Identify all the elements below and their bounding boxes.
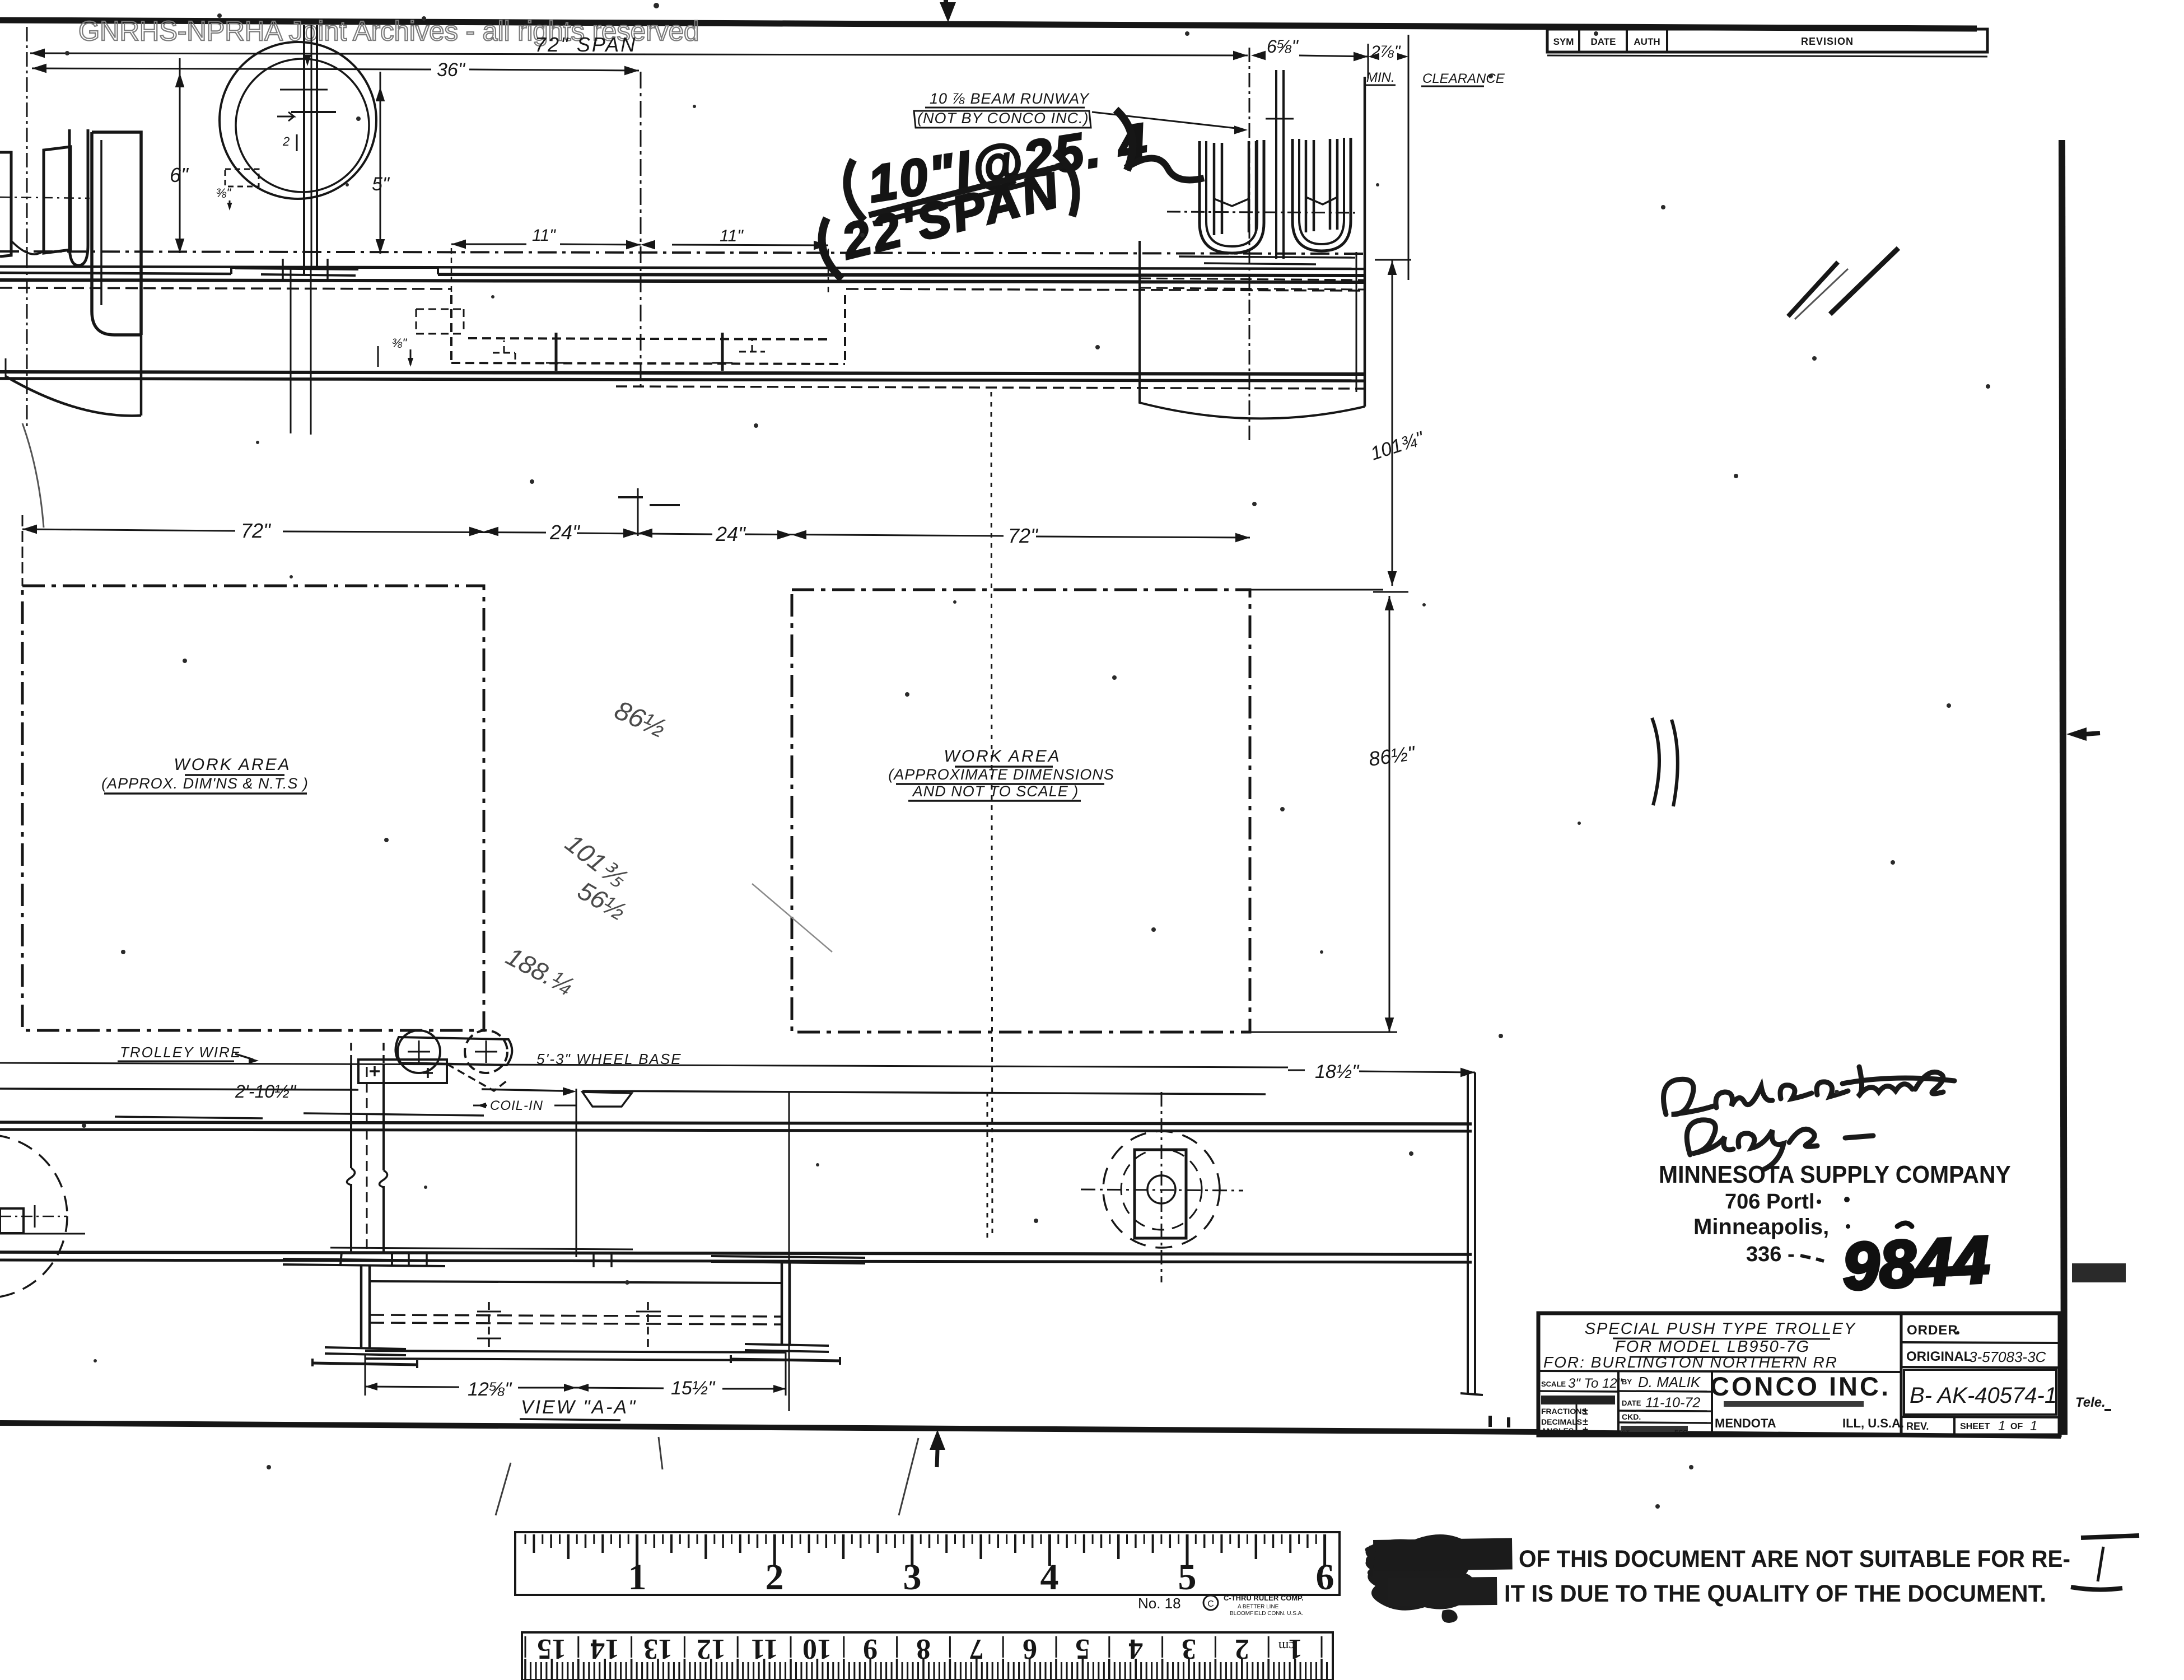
svg-text:OF: OF (2010, 1422, 2023, 1431)
svg-text:336 -: 336 - (1746, 1243, 1795, 1266)
svg-text:3: 3 (903, 1557, 922, 1598)
svg-text:6": 6" (170, 164, 189, 186)
svg-text:SHEET: SHEET (1960, 1422, 1990, 1431)
svg-text:72" SPAN: 72" SPAN (535, 33, 637, 56)
svg-text:8: 8 (916, 1633, 931, 1665)
svg-text:5": 5" (372, 174, 390, 195)
svg-text:DATE: DATE (1590, 36, 1616, 47)
svg-text:(APPROXIMATE DIMENSIONS: (APPROXIMATE DIMENSIONS (888, 766, 1114, 783)
svg-text:72": 72" (1008, 524, 1039, 547)
svg-text:CLEARANCE: CLEARANCE (1422, 71, 1505, 86)
svg-text:COIL-IN: COIL-IN (490, 1098, 543, 1113)
svg-text:188.¼: 188.¼ (501, 941, 578, 1001)
svg-text:11": 11" (532, 226, 556, 245)
svg-text:36": 36" (437, 59, 466, 81)
svg-text:6⅝": 6⅝" (1267, 36, 1299, 57)
svg-text:5: 5 (1075, 1633, 1090, 1665)
svg-text:11: 11 (750, 1633, 778, 1665)
svg-text:4: 4 (1040, 1557, 1059, 1598)
svg-text:86½": 86½" (1367, 741, 1417, 770)
svg-text:AND NOT TO SCALE ): AND NOT TO SCALE ) (912, 783, 1079, 800)
svg-text:2: 2 (1235, 1633, 1249, 1665)
svg-text:SCALE: SCALE (1541, 1380, 1566, 1388)
svg-text:REV.: REV. (1906, 1421, 1929, 1432)
svg-text:2: 2 (766, 1557, 784, 1598)
svg-text:9844: 9844 (1841, 1222, 1991, 1304)
svg-text:BY: BY (1622, 1378, 1632, 1386)
svg-text:2: 2 (282, 134, 290, 148)
svg-text:SYM: SYM (1553, 36, 1574, 47)
svg-text:24": 24" (549, 521, 581, 544)
svg-text:10: 10 (802, 1633, 832, 1665)
svg-text:13: 13 (643, 1633, 673, 1665)
svg-text:C-THRU RULER COMP.: C-THRU RULER COMP. (1224, 1594, 1304, 1602)
svg-text:WORK AREA: WORK AREA (174, 755, 291, 774)
svg-text:SPECIAL PUSH TYPE TROLLEY: SPECIAL PUSH TYPE TROLLEY (1585, 1320, 1856, 1338)
svg-text:ORDER: ORDER (1907, 1323, 1958, 1338)
svg-text:WORK AREA: WORK AREA (944, 747, 1061, 766)
svg-text:15½": 15½" (671, 1378, 716, 1399)
svg-text:FRACTIONS: FRACTIONS (1541, 1407, 1587, 1416)
svg-text:3: 3 (1182, 1633, 1196, 1665)
svg-text:AUTH: AUTH (1634, 36, 1660, 47)
svg-text:706 Portl: 706 Portl (1725, 1190, 1815, 1214)
svg-text:MINNESOTA SUPPLY COMPANY: MINNESOTA SUPPLY COMPANY (1659, 1161, 2011, 1189)
svg-text:2'-10½": 2'-10½" (235, 1081, 297, 1102)
svg-text:DECIMALS: DECIMALS (1541, 1417, 1582, 1426)
svg-text:12⅝": 12⅝" (468, 1379, 512, 1400)
svg-text:24": 24" (715, 522, 746, 545)
svg-text:D. MALIK: D. MALIK (1638, 1374, 1701, 1390)
svg-text:±: ± (1583, 1406, 1588, 1417)
svg-text:1: 1 (1998, 1418, 2005, 1434)
svg-text:MIN.: MIN. (1366, 70, 1395, 85)
svg-text:VIEW "A-A": VIEW "A-A" (521, 1397, 637, 1418)
svg-text:5: 5 (1178, 1557, 1197, 1598)
svg-text:6: 6 (1316, 1557, 1334, 1598)
svg-text:3" To 12": 3" To 12" (1568, 1376, 1623, 1391)
svg-text:12: 12 (697, 1633, 726, 1665)
svg-text:⅜": ⅜" (216, 186, 231, 200)
svg-text:4: 4 (1128, 1633, 1143, 1665)
svg-text:Minneapolis,: Minneapolis, (1693, 1215, 1829, 1239)
svg-text:6: 6 (1023, 1633, 1037, 1665)
svg-text:cm: cm (1278, 1639, 1295, 1653)
svg-text:9: 9 (863, 1633, 878, 1665)
svg-text:A BETTER LINE: A BETTER LINE (1238, 1604, 1279, 1610)
svg-text:15: 15 (537, 1633, 566, 1665)
svg-text:B- AK-40574-1: B- AK-40574-1 (1910, 1383, 2057, 1408)
svg-text:5'-3" WHEEL BASE: 5'-3" WHEEL BASE (536, 1051, 682, 1067)
svg-text:1: 1 (2030, 1418, 2037, 1434)
svg-text:11-10-72: 11-10-72 (1645, 1395, 1700, 1411)
svg-text:CONCO INC.: CONCO INC. (1710, 1371, 1891, 1401)
svg-text:18½": 18½" (1315, 1061, 1360, 1082)
svg-text:±: ± (1583, 1425, 1588, 1436)
svg-text:IT IS DUE TO THE QUALITY OF TH: IT IS DUE TO THE QUALITY OF THE DOCUMENT… (1504, 1580, 2046, 1607)
svg-text:11": 11" (720, 227, 744, 245)
svg-text:No. 18: No. 18 (1138, 1595, 1181, 1612)
svg-text:DATE: DATE (1622, 1399, 1641, 1407)
svg-text:ORIGINAL: ORIGINAL (1906, 1349, 1972, 1364)
svg-text:FOR: BURLINGTON NORTHERN RR: FOR: BURLINGTON NORTHERN RR (1543, 1354, 1838, 1371)
svg-text:⅜": ⅜" (392, 336, 407, 350)
svg-text:7: 7 (969, 1633, 984, 1665)
svg-text:REVISION: REVISION (1801, 36, 1854, 47)
svg-text:ILL, U.S.A.: ILL, U.S.A. (1842, 1416, 1904, 1430)
svg-text:CKD.: CKD. (1622, 1412, 1641, 1421)
svg-text:MENDOTA: MENDOTA (1715, 1416, 1776, 1430)
svg-text:OF THIS DOCUMENT ARE NOT SUITA: OF THIS DOCUMENT ARE NOT SUITABLE FOR RE… (1519, 1546, 2070, 1572)
svg-text:ST: ST (1622, 1430, 1630, 1436)
svg-text:BLOOMFIELD CONN. U.S.A.: BLOOMFIELD CONN. U.S.A. (1230, 1611, 1303, 1617)
svg-text:14: 14 (590, 1633, 619, 1665)
svg-text:Tele.: Tele. (2075, 1395, 2106, 1410)
svg-text:(APPROX. DIM'NS & N.T.S ): (APPROX. DIM'NS & N.T.S ) (101, 775, 309, 792)
svg-text:1: 1 (628, 1557, 647, 1598)
svg-text:86½: 86½ (610, 696, 670, 744)
svg-text:TROLLEY WIRE: TROLLEY WIRE (120, 1044, 241, 1061)
svg-text:3-57083-3C: 3-57083-3C (1969, 1348, 2046, 1365)
svg-text:101¾": 101¾" (1368, 427, 1427, 465)
svg-text:10 ⅞ BEAM RUNWAY: 10 ⅞ BEAM RUNWAY (930, 90, 1090, 107)
svg-text:(NOT BY CONCO INC.): (NOT BY CONCO INC.) (917, 110, 1089, 127)
svg-text:ANGLES: ANGLES (1541, 1426, 1574, 1435)
svg-text:ECO: ECO (1674, 1429, 1688, 1436)
svg-text:72": 72" (241, 519, 272, 542)
svg-text:C: C (1207, 1599, 1214, 1609)
